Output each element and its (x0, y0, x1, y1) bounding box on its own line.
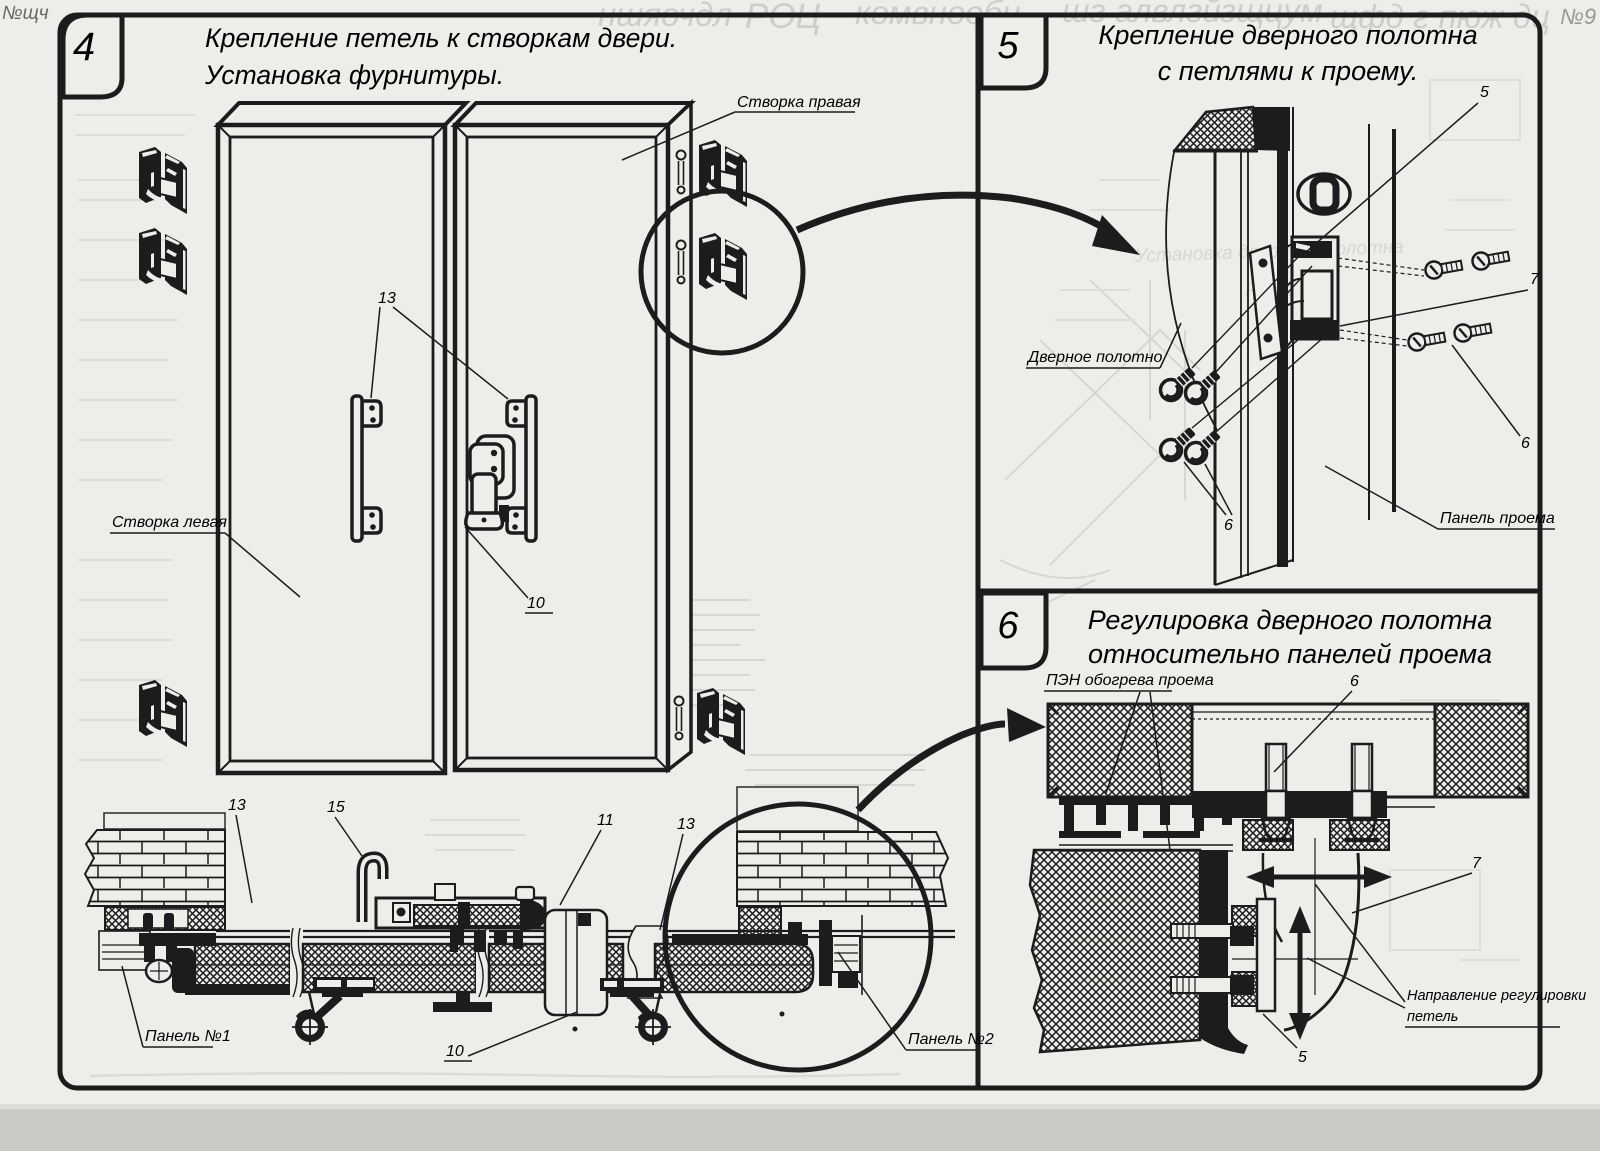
svg-text:Панель проема: Панель проема (1440, 510, 1555, 527)
svg-text:15: 15 (327, 799, 345, 816)
svg-text:6: 6 (1521, 435, 1530, 452)
svg-text:№щч: №щч (2, 3, 49, 24)
svg-text:5: 5 (997, 25, 1019, 67)
svg-text:ПЭН обогрева проема: ПЭН обогрева проема (1046, 672, 1214, 689)
svg-text:13: 13 (378, 290, 396, 307)
svg-text:Направление регулировки: Направление регулировки (1407, 988, 1586, 1004)
svg-text:Дверное полотно: Дверное полотно (1026, 349, 1163, 366)
svg-text:РОЦ: РОЦ (745, 0, 821, 36)
svg-text:№9: №9 (1560, 4, 1596, 29)
svg-text:6: 6 (1224, 517, 1233, 534)
svg-text:петель: петель (1407, 1009, 1458, 1025)
svg-text:10: 10 (527, 595, 545, 612)
svg-text:5: 5 (1480, 84, 1489, 101)
svg-text:Крепление петель к створкам дв: Крепление петель к створкам двери. (205, 23, 677, 53)
svg-text:Панель №1: Панель №1 (145, 1028, 231, 1045)
svg-text:Регулировка дверного полотна: Регулировка дверного полотна (1088, 605, 1493, 635)
svg-text:13: 13 (677, 816, 695, 833)
svg-text:7: 7 (1530, 271, 1540, 288)
svg-text:6: 6 (997, 605, 1019, 647)
svg-text:Створка правая: Створка правая (737, 94, 861, 111)
svg-text:7: 7 (1472, 855, 1482, 872)
svg-text:Крепление дверного полотна: Крепление дверного полотна (1098, 20, 1477, 50)
svg-text:5: 5 (1298, 1049, 1307, 1066)
svg-text:Створка левая: Створка левая (112, 514, 227, 531)
svg-text:10: 10 (446, 1043, 464, 1060)
svg-text:6: 6 (1350, 673, 1359, 690)
svg-text:13: 13 (228, 797, 246, 814)
svg-text:Панель №2: Панель №2 (908, 1031, 994, 1048)
svg-text:с петлями к проему.: с петлями к проему. (1158, 56, 1418, 86)
svg-text:Установка фурнитуры.: Установка фурнитуры. (204, 60, 504, 90)
svg-text:11: 11 (597, 812, 614, 829)
svg-text:относительно панелей проема: относительно панелей проема (1088, 639, 1492, 669)
svg-text:4: 4 (73, 25, 95, 69)
